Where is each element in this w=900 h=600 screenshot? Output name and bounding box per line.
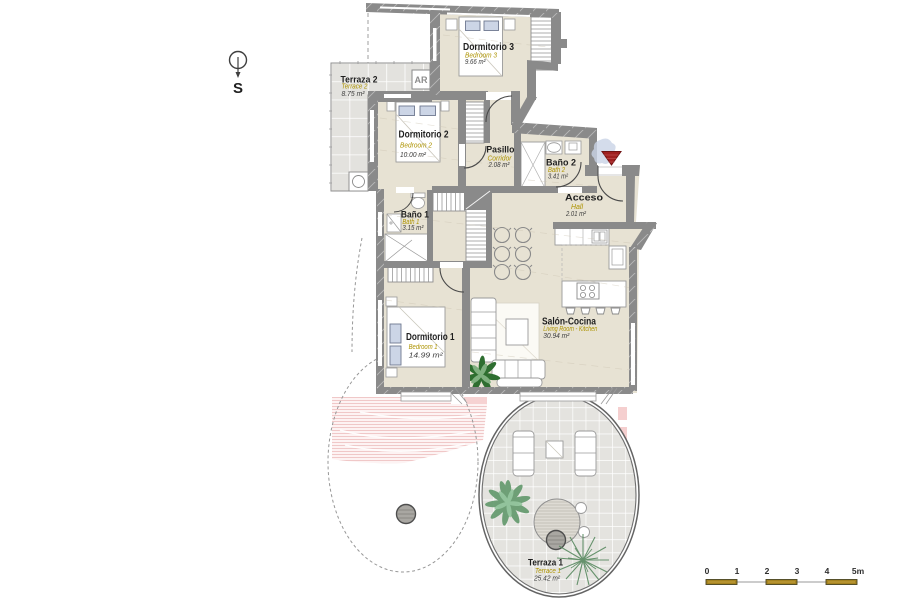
- svg-text:Pasillo: Pasillo: [486, 145, 514, 156]
- svg-text:AR: AR: [415, 75, 428, 85]
- svg-text:25.42 m²: 25.42 m²: [533, 575, 561, 582]
- svg-text:Terrace 2: Terrace 2: [342, 84, 368, 91]
- svg-text:1: 1: [735, 566, 740, 576]
- svg-text:Dormitorio 1: Dormitorio 1: [406, 332, 455, 343]
- svg-text:2.01 m²: 2.01 m²: [565, 211, 586, 218]
- svg-text:Living Room - Kitchen: Living Room - Kitchen: [543, 326, 597, 333]
- svg-text:S: S: [233, 80, 243, 97]
- svg-text:Dormitorio 3: Dormitorio 3: [463, 42, 514, 53]
- svg-text:9.66 m²: 9.66 m²: [465, 59, 486, 66]
- svg-text:10.00 m²: 10.00 m²: [400, 152, 427, 159]
- svg-text:3.41 m²: 3.41 m²: [548, 173, 569, 180]
- svg-text:2.08 m²: 2.08 m²: [488, 162, 510, 169]
- svg-text:Dormitorio 2: Dormitorio 2: [399, 130, 449, 141]
- svg-text:3: 3: [795, 566, 800, 576]
- svg-text:14.99 m²: 14.99 m²: [409, 352, 444, 359]
- svg-text:0: 0: [705, 566, 710, 576]
- svg-text:4: 4: [825, 566, 830, 576]
- svg-text:Terrace 1: Terrace 1: [535, 568, 561, 575]
- svg-text:8.75 m²: 8.75 m²: [342, 91, 366, 98]
- svg-text:Terraza 1: Terraza 1: [528, 557, 564, 568]
- svg-text:Hall: Hall: [571, 204, 583, 211]
- svg-text:3.15 m²: 3.15 m²: [402, 225, 424, 232]
- svg-text:30.94 m²: 30.94 m²: [543, 333, 570, 340]
- svg-text:Acceso: Acceso: [565, 193, 603, 204]
- svg-text:5m: 5m: [852, 566, 865, 576]
- svg-text:Bedroom 2: Bedroom 2: [400, 143, 432, 150]
- svg-text:Bedroom 1: Bedroom 1: [409, 344, 438, 351]
- svg-text:2: 2: [765, 566, 770, 576]
